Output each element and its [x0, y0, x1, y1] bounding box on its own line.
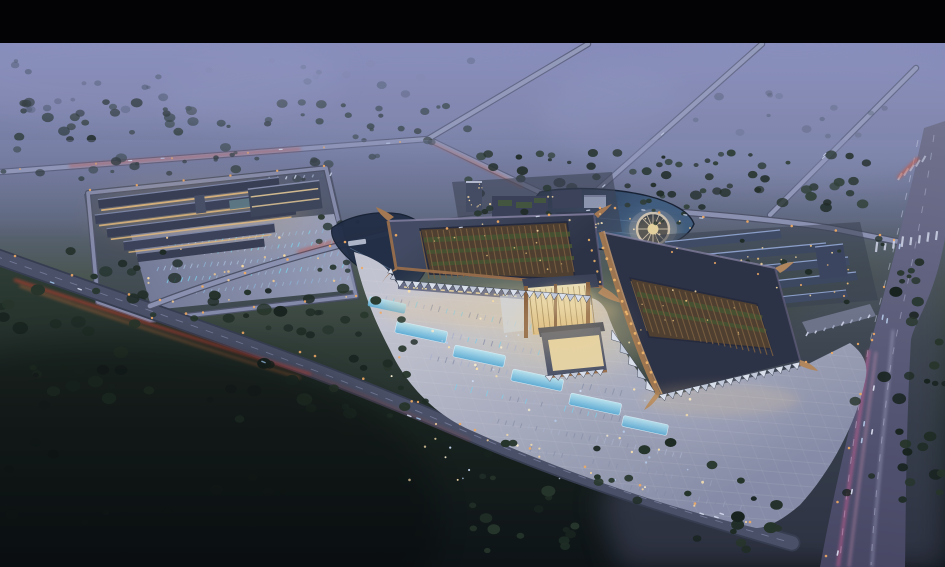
architectural-rendering: Aerial dusk rendering of a market hall c…	[0, 0, 945, 567]
letterbox-top	[0, 0, 945, 43]
color-veil	[0, 43, 945, 567]
scene-canvas: Aerial dusk rendering of a market hall c…	[0, 0, 945, 567]
